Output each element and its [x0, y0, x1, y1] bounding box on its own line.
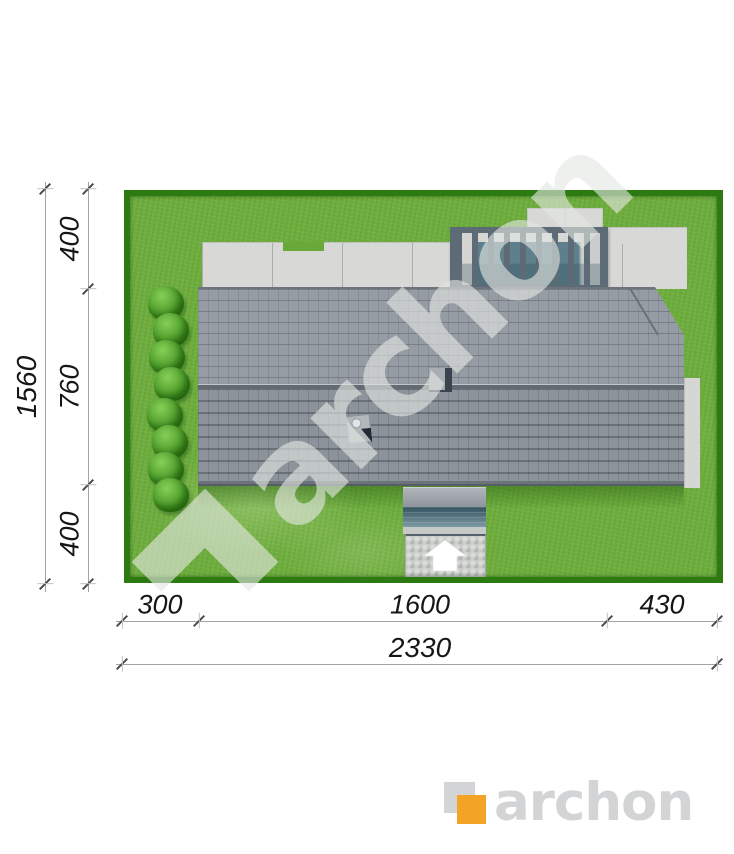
dim-label-bottom-seg-3: 430 — [639, 590, 684, 621]
dimension-line-bottom-total — [116, 664, 722, 665]
dim-label-left-seg-3: 400 — [55, 511, 86, 556]
dim-label-left-seg-2: 760 — [55, 364, 86, 409]
dimension-line-left-total — [45, 182, 46, 592]
dim-label-bottom-seg-1: 300 — [137, 590, 182, 621]
dim-label-left-total: 1560 — [11, 356, 43, 418]
brand-logo-accent — [457, 795, 486, 824]
brand-logo-text: archon — [494, 776, 693, 829]
dimension-line-bottom-segments — [116, 621, 722, 622]
dim-label-bottom-seg-2: 1600 — [390, 590, 450, 621]
dim-label-bottom-total: 2330 — [389, 632, 451, 664]
dim-label-left-seg-1: 400 — [55, 216, 86, 261]
garden-plot — [124, 190, 723, 583]
hedge-border — [124, 190, 723, 583]
dimension-line-left-segments — [88, 182, 89, 592]
site-plan-canvas: archon 1560 400 760 400 300 1600 430 233… — [0, 0, 734, 854]
